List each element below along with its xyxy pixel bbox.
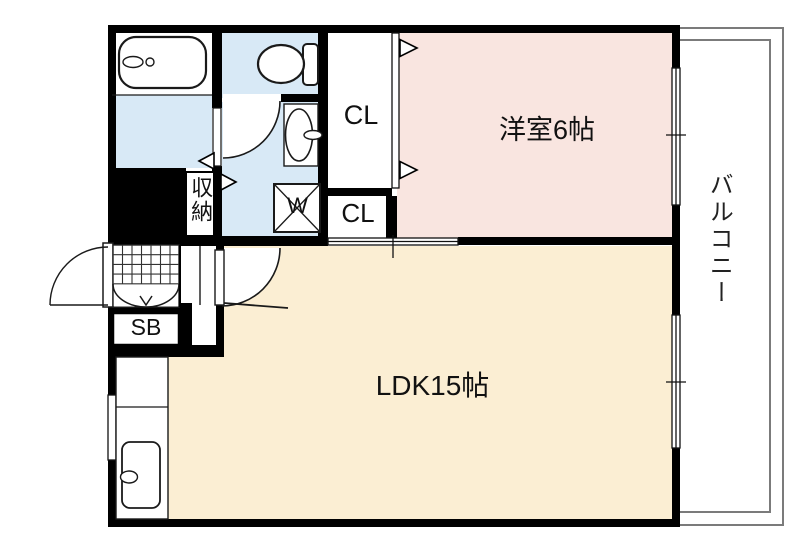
wall-western-room-south [458, 237, 672, 245]
wall-west-lower [108, 460, 116, 527]
washing-machine-label: W [275, 194, 320, 217]
toilet-bowl [258, 45, 304, 83]
wall-east-3 [672, 448, 680, 527]
closet-upper-label: CL [329, 101, 393, 129]
shoe-box-label: SB [113, 315, 179, 339]
wall-south [108, 519, 678, 527]
bathtub-drain [146, 58, 154, 66]
bathroom-floor [112, 95, 212, 168]
ldk-label: LDK15帖 [330, 371, 535, 400]
wall-closet-divider [326, 188, 392, 196]
washbasin-faucet [304, 131, 322, 140]
wall-bath-divider-upper [212, 25, 222, 108]
kitchen-faucet [121, 471, 138, 483]
wall-closet-lower-east [386, 196, 397, 240]
wall-east-1 [672, 25, 680, 68]
western-room-label: 洋室6帖 [432, 116, 662, 144]
closet-sliding-door [392, 33, 399, 188]
wall-hall-east-lower [216, 303, 224, 348]
genkan-step-area [114, 285, 178, 307]
wall-north [108, 25, 678, 33]
pillar-block [112, 168, 186, 245]
wall-shoebox-south [108, 345, 224, 357]
ldk-door-leaf [215, 250, 224, 305]
window-kitchen [108, 395, 116, 460]
floor-plan: 洋室6帖 LDK15帖 バルコニー CL CL 収納 W SB [0, 0, 800, 548]
genkan-grid [113, 245, 180, 307]
entrance-door-arc [50, 247, 108, 305]
balcony-label: バルコニー [706, 172, 731, 307]
kitchen-counter [116, 357, 168, 519]
wall-toilet-south [281, 94, 322, 102]
wall-west-upper [108, 25, 116, 245]
storage-label: 収納 [189, 176, 212, 224]
wall-washroom-south [180, 236, 328, 246]
entrance-door [50, 243, 116, 307]
bathtub-faucet [123, 57, 143, 68]
toilet-door-opening [223, 94, 281, 102]
toilet-tank [303, 44, 318, 85]
wall-east-2 [672, 205, 680, 315]
entrance-door-leaf [103, 243, 113, 307]
floor-plan-drawing [0, 0, 800, 548]
ldk-floor-extension [168, 357, 222, 519]
closet-lower-label: CL [329, 200, 387, 227]
